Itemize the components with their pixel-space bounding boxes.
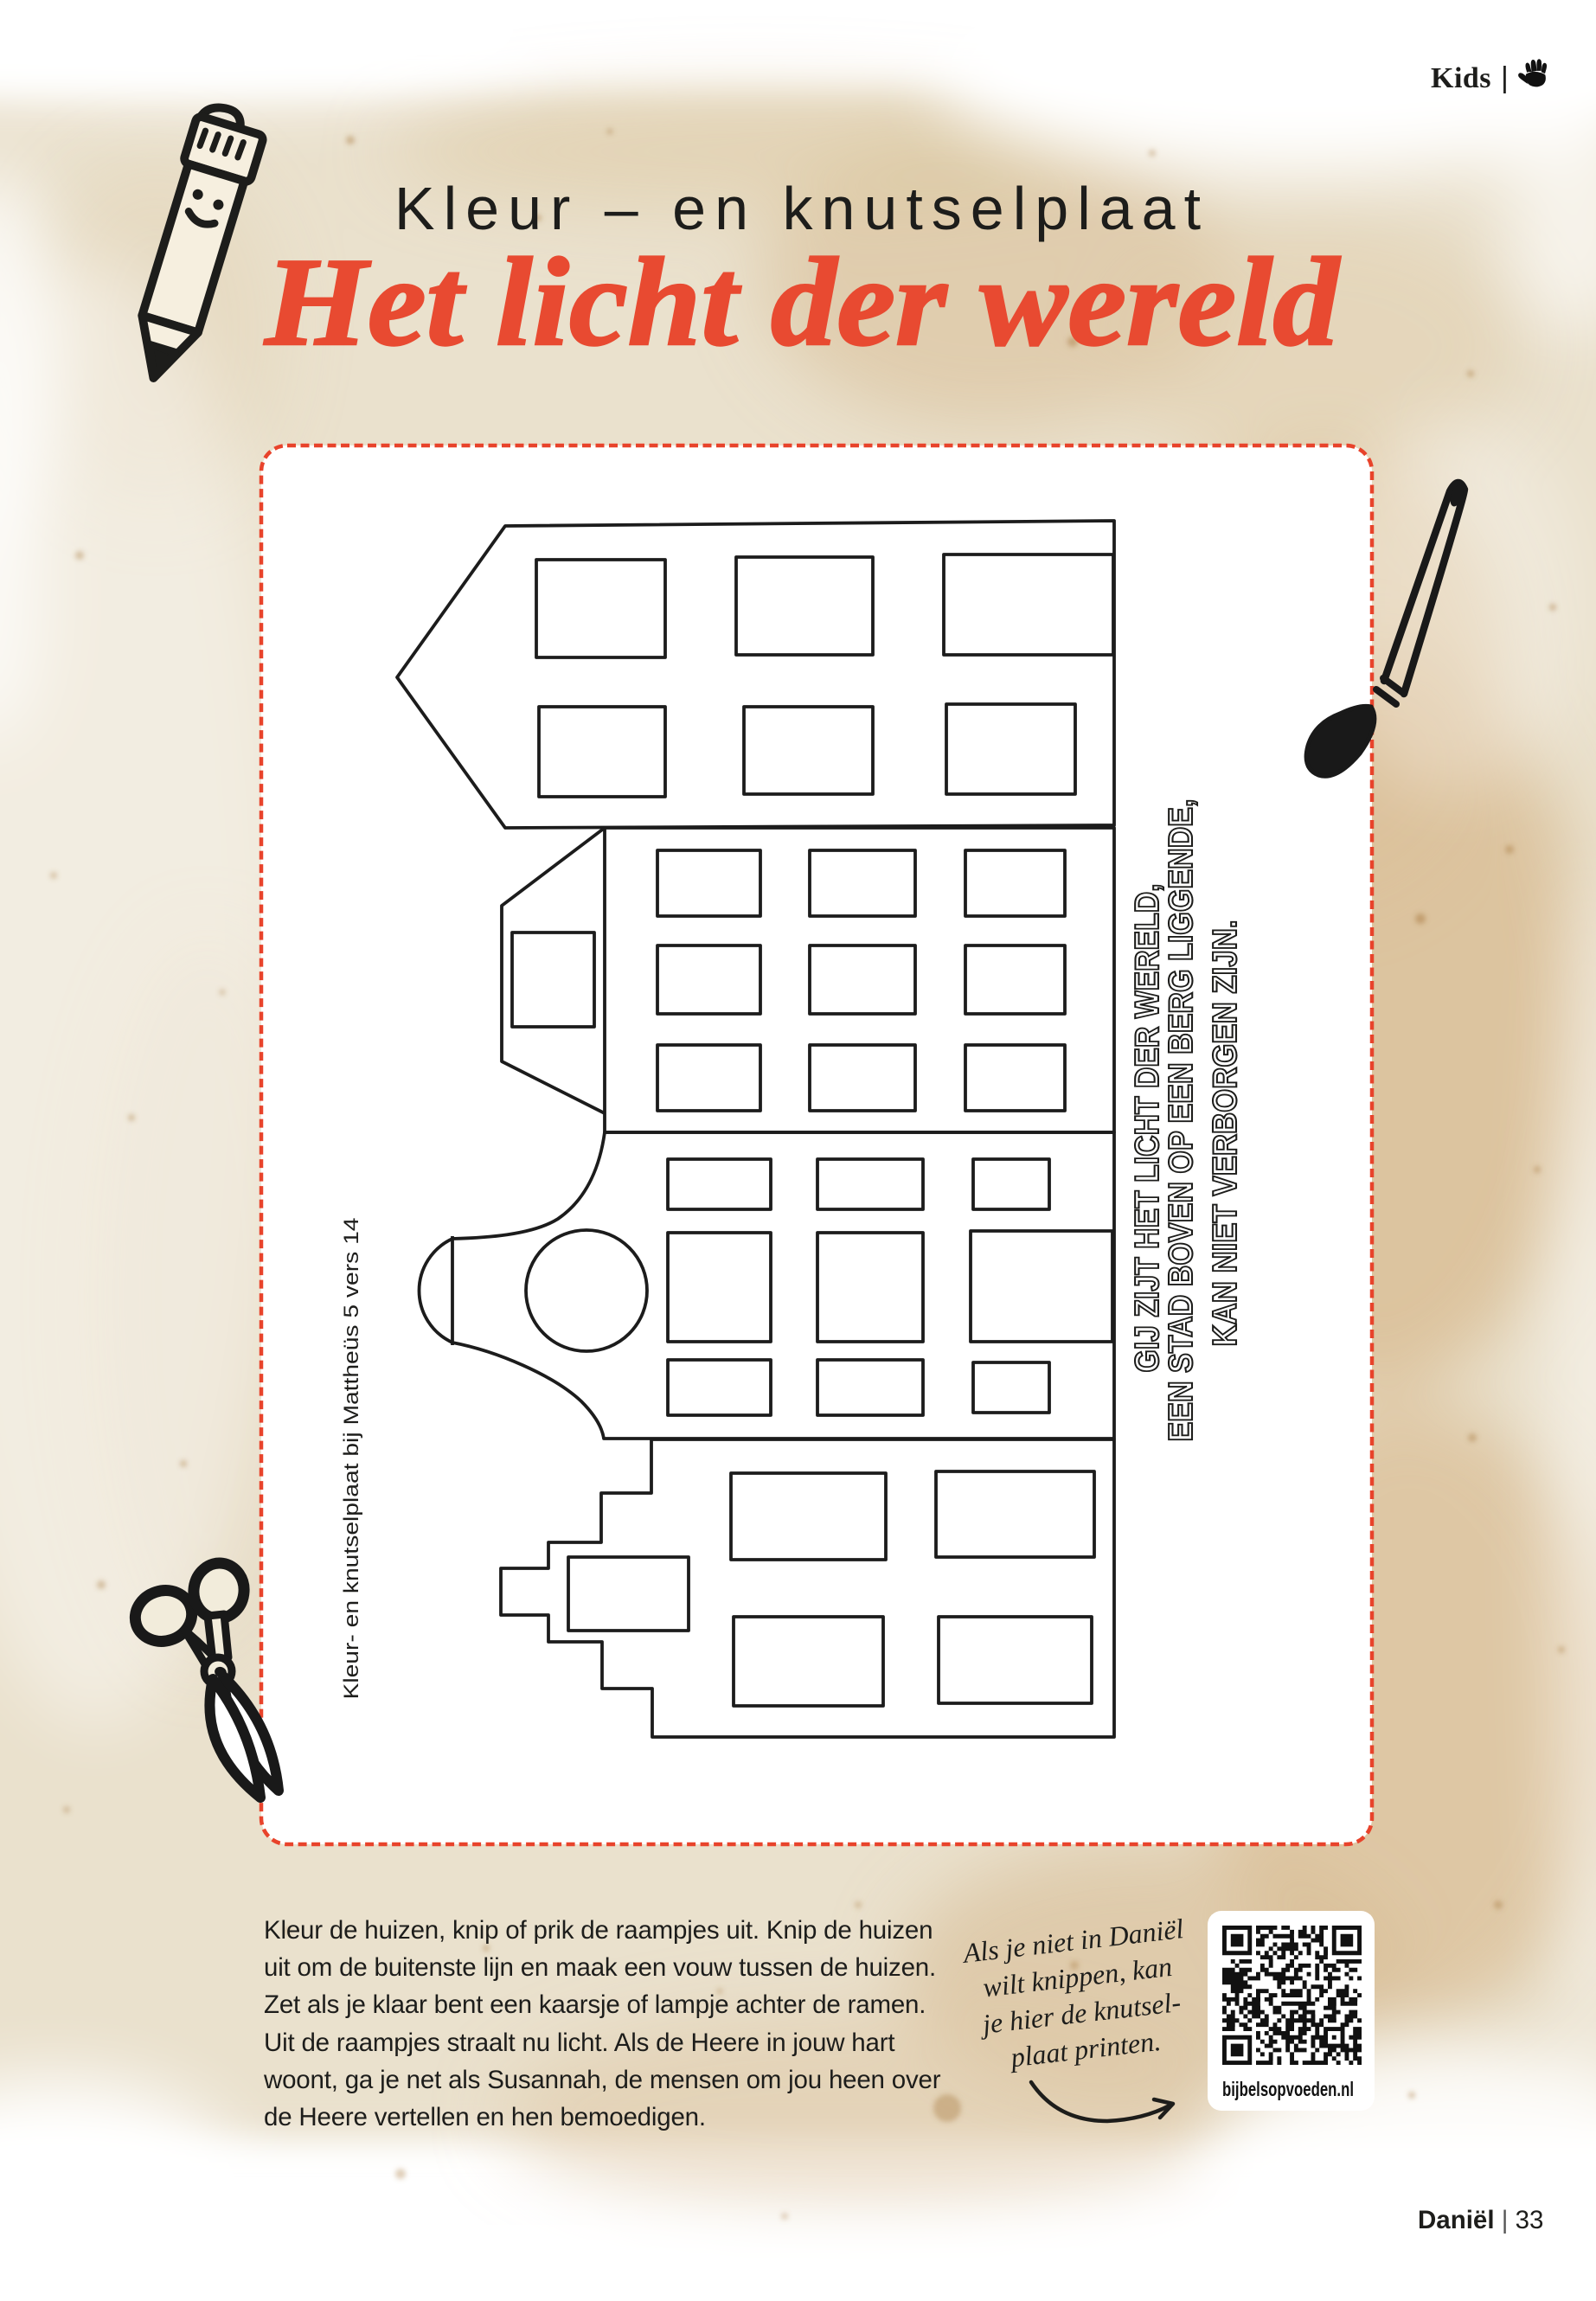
svg-text:Kleur- en knutselplaat bij Mat: Kleur- en knutselplaat bij Mattheüs 5 ve… — [340, 1218, 363, 1700]
svg-text:EEN STAD BOVEN OP EEN BERG LIG: EEN STAD BOVEN OP EEN BERG LIGGENDE, — [1163, 799, 1200, 1442]
svg-text:KAN NIET VERBORGEN ZIJN.: KAN NIET VERBORGEN ZIJN. — [1207, 920, 1244, 1347]
svg-text:GIJ ZIJT HET LICHT DER WERELD,: GIJ ZIJT HET LICHT DER WERELD, — [1129, 884, 1166, 1373]
svg-text:bijbelsopvoeden.nl: bijbelsopvoeden.nl — [1222, 2078, 1354, 2100]
